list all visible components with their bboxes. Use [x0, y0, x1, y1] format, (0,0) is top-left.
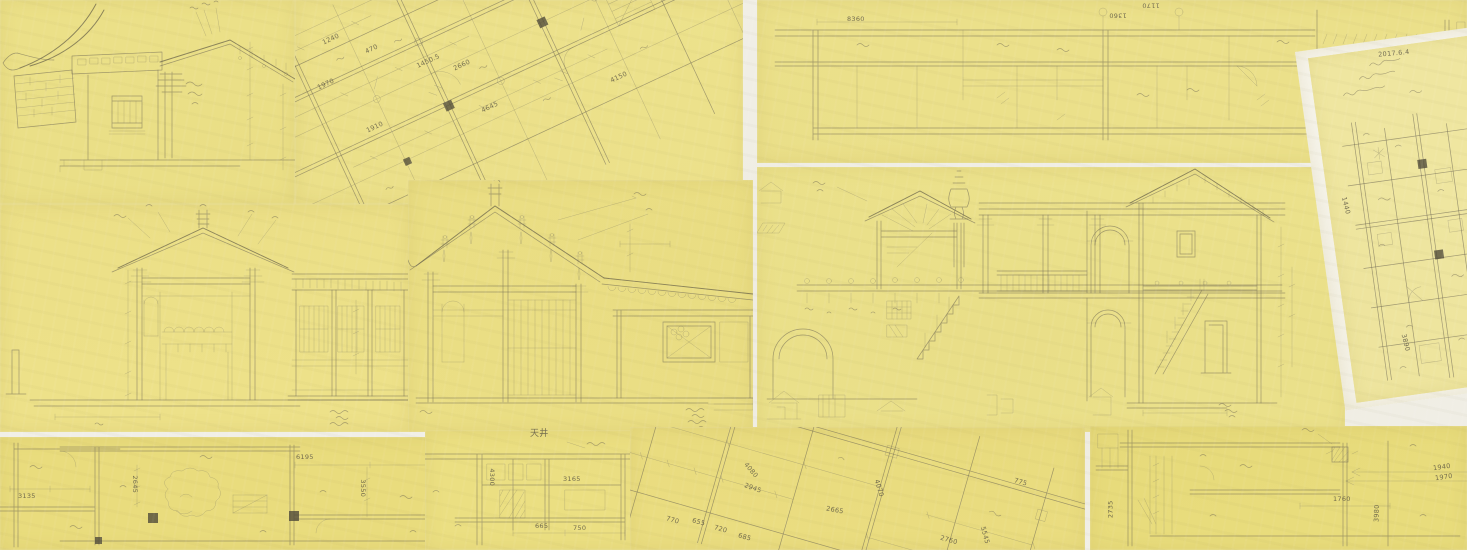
dimension-label: 750: [573, 525, 586, 532]
sheet-middle-left-section: [0, 204, 410, 432]
dimension-label: 665: [535, 523, 548, 530]
sheet-middle-right-sections: [757, 167, 1345, 432]
dimension-label: 4300: [489, 468, 496, 486]
sheet-bottom-rotated-plan: 4080 2945 770 655 720 685 2665 4070 775 …: [630, 427, 1085, 550]
section-drawing: [757, 167, 1345, 432]
dimension-label: 6195: [296, 454, 314, 461]
site-grid-drawing: [630, 427, 1085, 550]
elevation-drawing: [0, 0, 295, 204]
dimension-label: 3550: [360, 479, 367, 497]
dimension-label: 3165: [563, 476, 581, 483]
sheet-top-left-elevation: [0, 0, 295, 204]
dimension-label: 8360: [847, 16, 865, 23]
dimension-label: 1360: [1109, 12, 1127, 19]
dimension-label: 1170: [1142, 2, 1160, 9]
note-label: 天井: [530, 430, 549, 439]
dimension-label: 2735: [1108, 500, 1115, 518]
sketch-collage-canvas: 1240 1970 470 1450.5 2660 4645 4150 1910…: [0, 0, 1467, 550]
elevation-drawing: [408, 180, 753, 432]
dimension-label: 1760: [1333, 496, 1351, 503]
sheet-bottom-right-plan: 2735 1760 3980 1940 1970: [1090, 426, 1467, 550]
dimension-label: 2645: [132, 475, 139, 493]
floor-plan-drawing: [295, 0, 743, 204]
floor-plan-drawing: [0, 437, 447, 550]
sheet-top-middle-plan: 1240 1970 470 1450.5 2660 4645 4150 1910: [295, 0, 743, 204]
floor-plan-drawing: [1090, 426, 1467, 550]
dimension-label: 3980: [1373, 504, 1380, 522]
sheet-middle-center-elevation: [408, 180, 753, 432]
dimension-label: 3135: [18, 493, 36, 500]
section-elevation-drawing: [0, 204, 410, 432]
sheet-bottom-left-plan: 3135 2645 6195 3550: [0, 437, 447, 550]
